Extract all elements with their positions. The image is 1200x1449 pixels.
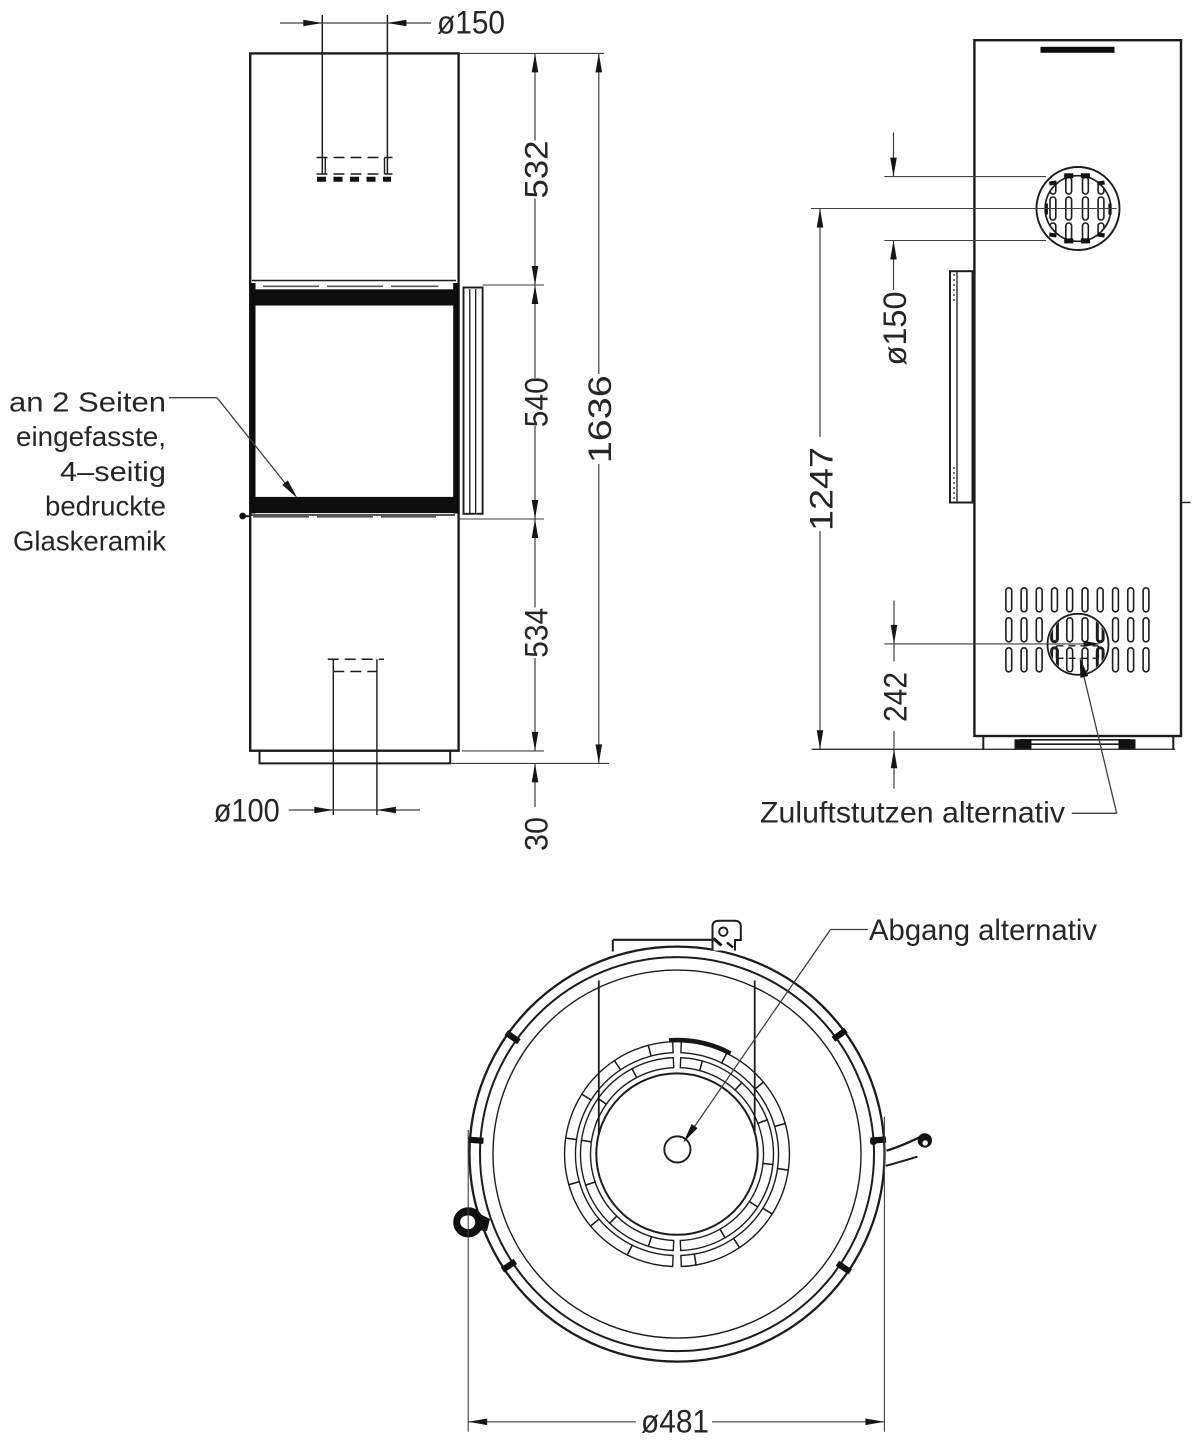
svg-text:Glaskeramik: Glaskeramik bbox=[13, 525, 167, 556]
svg-text:bedruckte: bedruckte bbox=[45, 491, 166, 522]
svg-text:30: 30 bbox=[519, 817, 555, 851]
svg-text:ø100: ø100 bbox=[214, 793, 280, 829]
svg-text:532: 532 bbox=[519, 141, 555, 199]
svg-text:ø150: ø150 bbox=[437, 5, 505, 41]
svg-text:ø481: ø481 bbox=[641, 1404, 709, 1440]
svg-text:1247: 1247 bbox=[804, 447, 840, 531]
svg-text:Zuluftstutzen alternativ: Zuluftstutzen alternativ bbox=[760, 797, 1065, 830]
svg-text:1636: 1636 bbox=[582, 375, 618, 463]
svg-text:ø150: ø150 bbox=[877, 292, 913, 366]
svg-text:an 2 Seiten: an 2 Seiten bbox=[9, 387, 166, 418]
svg-text:4–seitig: 4–seitig bbox=[60, 456, 166, 487]
svg-text:534: 534 bbox=[519, 608, 555, 658]
svg-text:540: 540 bbox=[519, 377, 555, 427]
svg-text:eingefasste,: eingefasste, bbox=[16, 421, 166, 452]
svg-text:242: 242 bbox=[878, 672, 914, 722]
svg-text:Abgang alternativ: Abgang alternativ bbox=[869, 914, 1097, 947]
